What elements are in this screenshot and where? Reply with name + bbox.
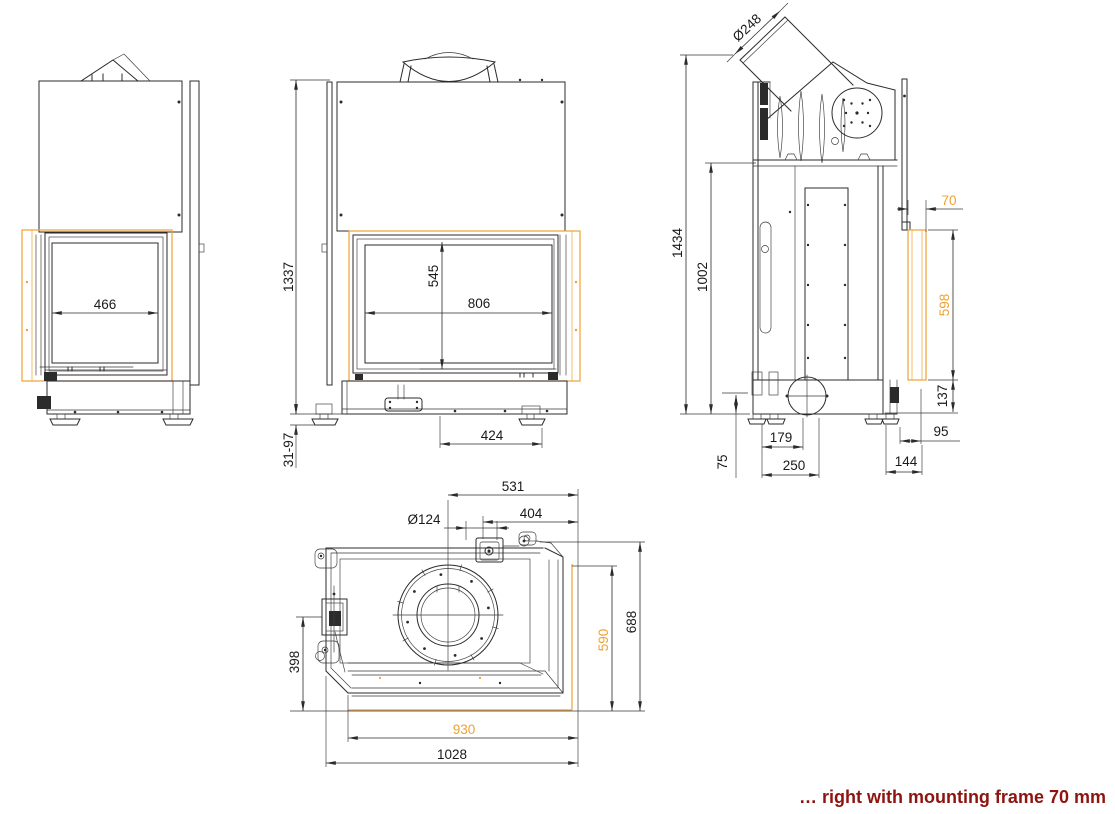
dim-front-leveling-range: 31-97 [281, 433, 296, 468]
dim-side-b-front-gap: 95 [933, 424, 948, 439]
dim-side-b-base-height: 137 [935, 385, 950, 408]
dim-top-frame-side: 590 [596, 629, 611, 652]
outlet-bracket [476, 532, 563, 562]
view-side-right: Ø248 [670, 3, 963, 478]
dim-side-b-air-edge: 250 [783, 458, 806, 473]
mounting-frame-outline-side-b [908, 230, 926, 380]
dim-side-b-total-height: 1434 [670, 227, 685, 258]
dim-side-b-frame-height: 598 [937, 294, 952, 317]
view-side-left: 466 [22, 54, 204, 425]
flue-collar [393, 560, 503, 670]
damper-motor-plate [832, 88, 883, 145]
dim-front-glass-height: 545 [426, 265, 441, 288]
flue-duct: Ø248 [727, 3, 853, 111]
dim-front-base-width: 424 [481, 428, 504, 443]
flue-bowl [400, 53, 543, 83]
dim-side-b-frame-depth: 70 [941, 193, 956, 208]
dim-side-b-body-height: 1002 [695, 262, 710, 292]
dim-side-b-air-center: 179 [770, 430, 793, 445]
caption-text: … right with mounting frame 70 mm [799, 787, 1106, 807]
dim-top-frame-front: 930 [453, 722, 476, 737]
technical-drawing-page: 466 [0, 0, 1115, 814]
dim-top-flue-center: 531 [502, 479, 525, 494]
mounting-frame-outline-front [349, 231, 580, 381]
drawing-svg: 466 [0, 0, 1115, 814]
combustion-air-inlet [786, 375, 829, 417]
dim-top-outlet-offset: 404 [520, 506, 543, 521]
door-glass-front [365, 245, 552, 363]
view-top-plan: 531 404 Ø124 398 590 688 930 1028 [287, 479, 645, 767]
dim-side-b-base-front: 144 [895, 454, 918, 469]
dim-top-total-width: 1028 [437, 747, 467, 762]
dim-top-outlet-diameter: Ø124 [407, 512, 441, 527]
dim-side-a-glass-width: 466 [94, 297, 117, 312]
dim-front-total-height: 1337 [281, 262, 296, 292]
dim-side-b-flue-diameter: Ø248 [730, 11, 764, 44]
dim-top-total-depth: 688 [624, 611, 639, 634]
dim-top-hinge-depth: 398 [287, 651, 302, 674]
view-front: 1337 31-97 545 806 424 [281, 53, 580, 469]
dim-side-b-foot-height: 75 [715, 454, 730, 469]
dim-front-glass-width: 806 [468, 296, 491, 311]
